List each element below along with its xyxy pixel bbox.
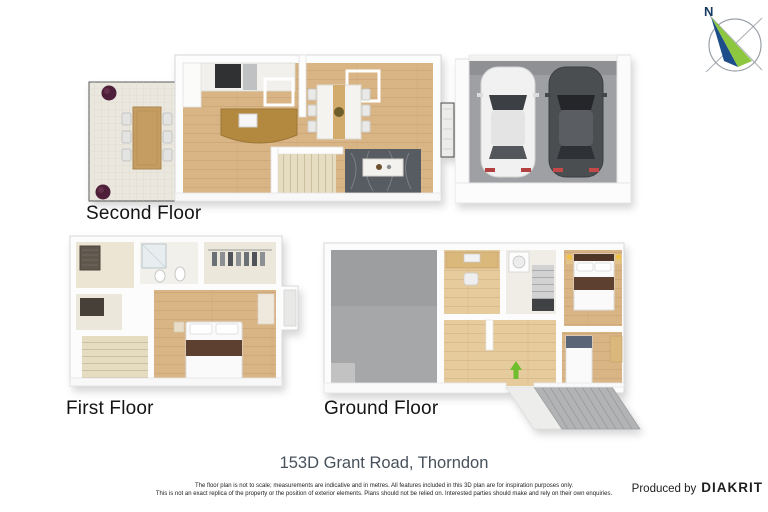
producer-credit: Produced by DIAKRIT [632, 480, 763, 495]
diakrit-logo: DIAKRIT [701, 480, 763, 495]
second-floor-plan [87, 53, 455, 205]
ground-floor-label: Ground Floor [324, 398, 438, 420]
second-floor-label: Second Floor [86, 203, 201, 225]
white-car [477, 67, 539, 177]
garage-plan [455, 53, 631, 205]
property-address: 153D Grant Road, Thorndon [0, 454, 768, 473]
deck [89, 82, 175, 201]
first-floor-plan [62, 230, 302, 400]
north-label: N [704, 4, 713, 19]
first-floor-label: First Floor [66, 398, 154, 420]
dark-car [545, 67, 607, 177]
producer-prefix: Produced by [632, 483, 697, 495]
living-kitchen-unit [175, 55, 454, 201]
floorplan-sheet: Second Floor [0, 0, 768, 512]
